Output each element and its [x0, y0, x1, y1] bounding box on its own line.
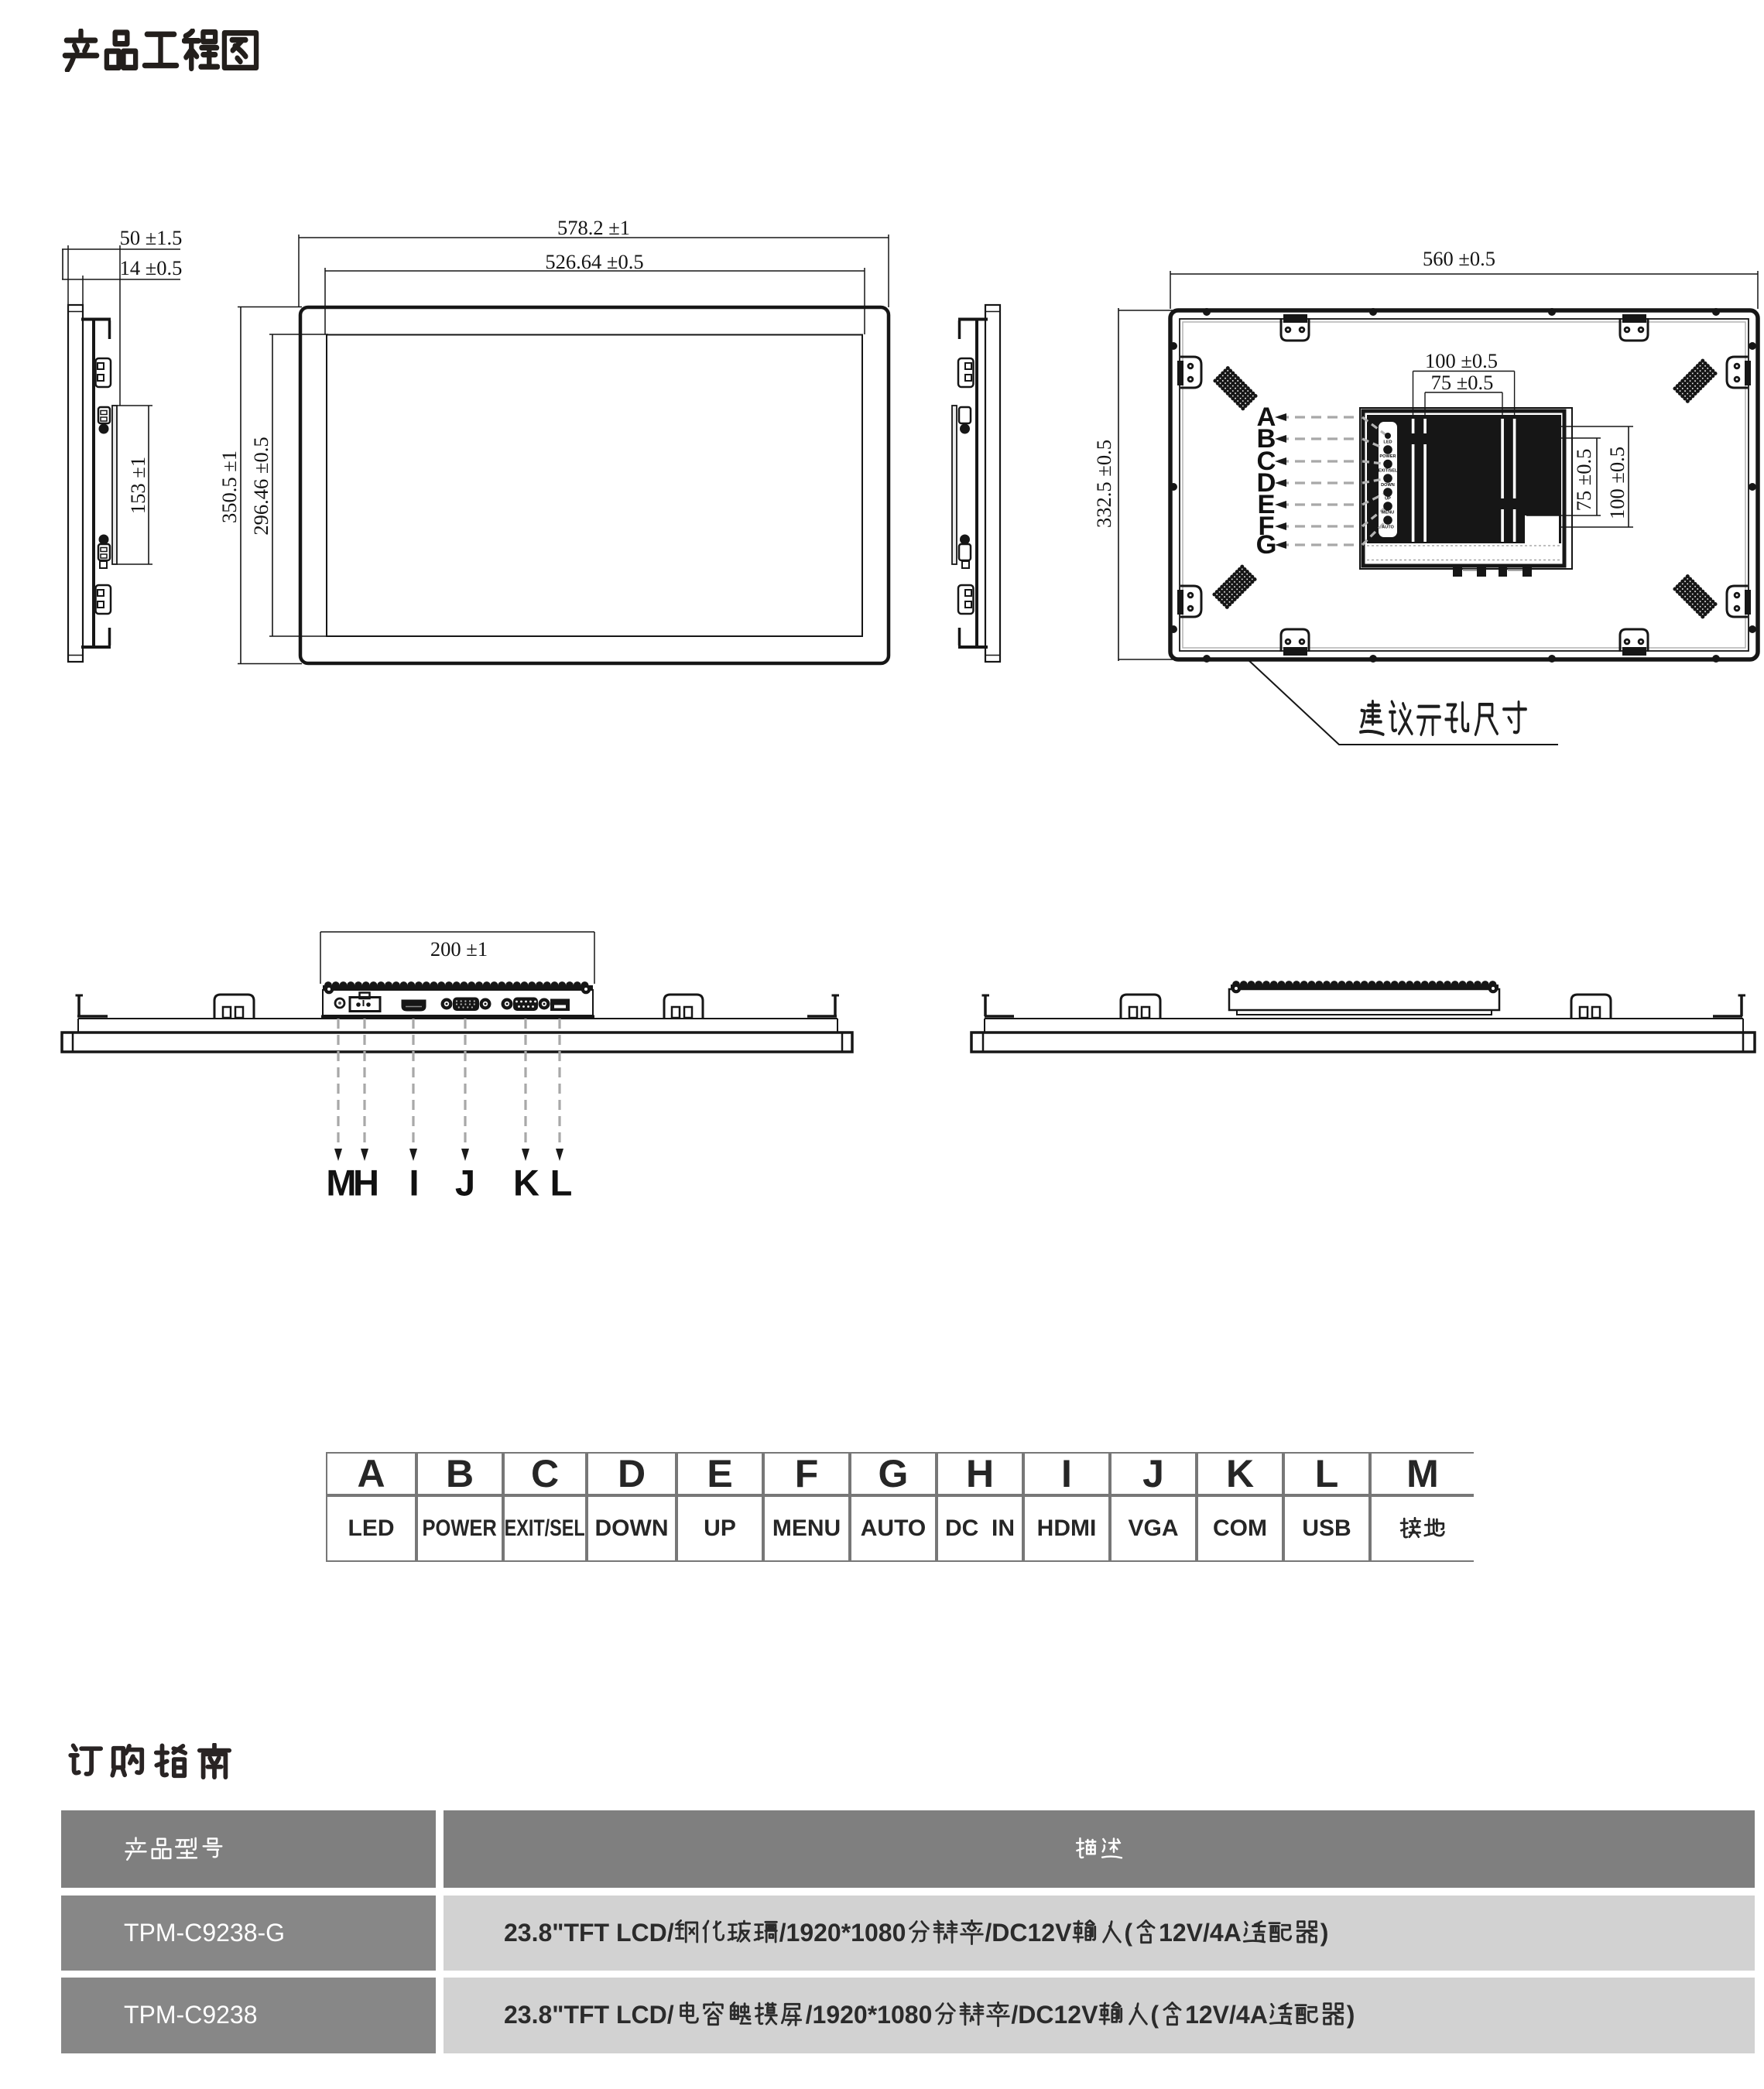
svg-text:LED: LED	[1383, 440, 1392, 445]
svg-text:EXIT/SEL: EXIT/SEL	[1379, 469, 1398, 474]
svg-text:MENU: MENU	[1382, 511, 1394, 515]
svg-text:POWER: POWER	[1379, 454, 1396, 459]
svg-text:UP: UP	[1385, 497, 1391, 502]
svg-text:DOWN: DOWN	[1381, 483, 1395, 488]
svg-text:AUTO: AUTO	[1382, 526, 1394, 530]
